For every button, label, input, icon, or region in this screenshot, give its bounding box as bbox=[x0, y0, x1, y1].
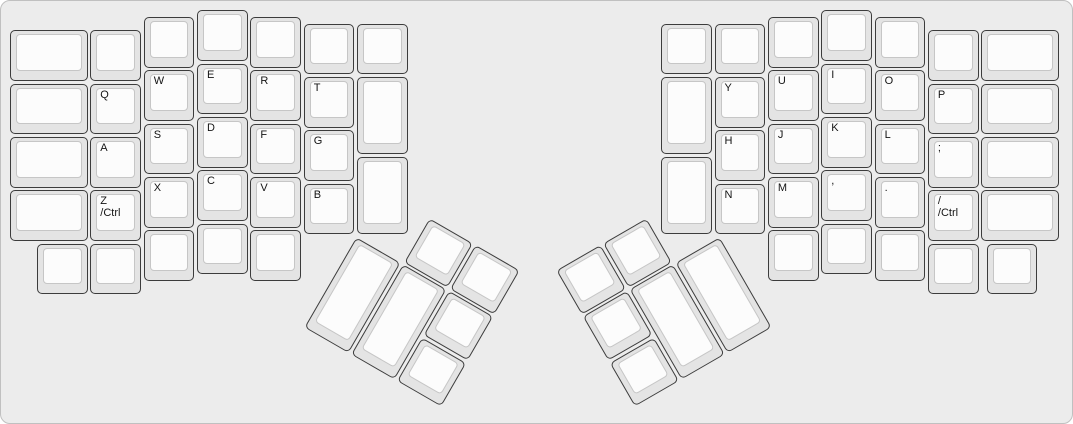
keycap-top: F bbox=[256, 128, 295, 165]
key-f[interactable]: F bbox=[250, 124, 301, 175]
key-slash-ctrl[interactable]: / /Ctrl bbox=[928, 190, 979, 241]
keycap-top: C bbox=[203, 174, 242, 211]
blank-key[interactable] bbox=[987, 244, 1038, 295]
keycap-top: M bbox=[774, 181, 813, 218]
blank-key[interactable] bbox=[197, 10, 248, 61]
blank-key[interactable] bbox=[144, 17, 195, 68]
blank-key[interactable] bbox=[928, 244, 979, 295]
key-j[interactable]: J bbox=[768, 124, 819, 175]
key-label: / /Ctrl bbox=[938, 196, 958, 219]
keycap-top: P bbox=[934, 88, 973, 125]
blank-key[interactable] bbox=[981, 137, 1058, 188]
keycap-top: I bbox=[827, 68, 866, 105]
keycap-top bbox=[16, 194, 81, 231]
key-m[interactable]: M bbox=[768, 177, 819, 228]
key-comma[interactable]: , bbox=[821, 170, 872, 221]
key-label: B bbox=[314, 190, 321, 202]
key-label: I bbox=[831, 70, 834, 82]
key-o[interactable]: O bbox=[875, 70, 926, 121]
key-label: V bbox=[260, 183, 267, 195]
keycap-top: A bbox=[96, 141, 135, 178]
key-t[interactable]: T bbox=[304, 77, 355, 128]
blank-key[interactable] bbox=[821, 224, 872, 275]
blank-key[interactable] bbox=[661, 157, 712, 234]
keycap-top bbox=[827, 228, 866, 265]
key-label: N bbox=[725, 190, 733, 202]
key-label: Y bbox=[725, 83, 732, 95]
key-p[interactable]: P bbox=[928, 84, 979, 135]
blank-key[interactable] bbox=[661, 77, 712, 154]
blank-key[interactable] bbox=[875, 17, 926, 68]
keycap-top bbox=[987, 88, 1052, 125]
keycap-top bbox=[987, 34, 1052, 71]
keycap-top bbox=[987, 194, 1052, 231]
keycap-top bbox=[987, 141, 1052, 178]
blank-key[interactable] bbox=[357, 24, 408, 75]
blank-key[interactable] bbox=[10, 84, 87, 135]
key-a[interactable]: A bbox=[90, 137, 141, 188]
key-c[interactable]: C bbox=[197, 170, 248, 221]
keycap-top bbox=[16, 34, 81, 71]
key-label: U bbox=[778, 76, 786, 88]
blank-key[interactable] bbox=[10, 190, 87, 241]
keycap-top bbox=[16, 88, 81, 125]
blank-key[interactable] bbox=[250, 230, 301, 281]
keycap-top bbox=[16, 141, 81, 178]
key-b[interactable]: B bbox=[304, 184, 355, 235]
key-k[interactable]: K bbox=[821, 117, 872, 168]
keycap-top: H bbox=[721, 134, 760, 171]
keycap-top: ; bbox=[934, 141, 973, 178]
blank-key[interactable] bbox=[661, 24, 712, 75]
keycap-top bbox=[203, 14, 242, 51]
key-y[interactable]: Y bbox=[715, 77, 766, 128]
key-label: . bbox=[885, 183, 888, 195]
keycap-top: J bbox=[774, 128, 813, 165]
key-label: Z /Ctrl bbox=[100, 196, 120, 219]
blank-key[interactable] bbox=[90, 30, 141, 81]
key-label: T bbox=[314, 83, 321, 95]
keycap-top bbox=[774, 21, 813, 58]
key-w[interactable]: W bbox=[144, 70, 195, 121]
keycap-top bbox=[310, 28, 349, 65]
keyboard-layout-stage: QAZ /CtrlWSXEDCRFVTGB YHNUJMIK,OL.P;/ /C… bbox=[0, 0, 1073, 424]
keycap-top: O bbox=[881, 74, 920, 111]
key-label: C bbox=[207, 176, 215, 188]
key-label: L bbox=[885, 130, 891, 142]
keycap-top: B bbox=[310, 188, 349, 225]
keycap-top bbox=[256, 21, 295, 58]
keycap-top: / /Ctrl bbox=[934, 194, 973, 231]
blank-key[interactable] bbox=[357, 157, 408, 234]
keycap-top bbox=[43, 248, 82, 285]
key-n[interactable]: N bbox=[715, 184, 766, 235]
keycap-top: Y bbox=[721, 81, 760, 118]
key-label: S bbox=[154, 130, 161, 142]
keycap-top bbox=[881, 234, 920, 271]
key-label: F bbox=[260, 130, 267, 142]
keycap-top: K bbox=[827, 121, 866, 158]
key-label: P bbox=[938, 90, 945, 102]
blank-key[interactable] bbox=[821, 10, 872, 61]
blank-key[interactable] bbox=[37, 244, 88, 295]
key-h[interactable]: H bbox=[715, 130, 766, 181]
keycap-top bbox=[256, 234, 295, 271]
key-z-ctrl[interactable]: Z /Ctrl bbox=[90, 190, 141, 241]
keycap-top bbox=[96, 34, 135, 71]
blank-key[interactable] bbox=[357, 77, 408, 154]
blank-key[interactable] bbox=[768, 17, 819, 68]
keycap-top bbox=[150, 234, 189, 271]
key-period[interactable]: . bbox=[875, 177, 926, 228]
key-label: W bbox=[154, 76, 164, 88]
keycap-top bbox=[667, 161, 706, 224]
keycap-top bbox=[203, 228, 242, 265]
key-label: E bbox=[207, 70, 214, 82]
key-x[interactable]: X bbox=[144, 177, 195, 228]
key-label: , bbox=[831, 176, 834, 188]
key-i[interactable]: I bbox=[821, 64, 872, 115]
key-d[interactable]: D bbox=[197, 117, 248, 168]
keycap-top: N bbox=[721, 188, 760, 225]
key-label: A bbox=[100, 143, 107, 155]
key-g[interactable]: G bbox=[304, 130, 355, 181]
key-label: G bbox=[314, 136, 323, 148]
keycap-top: Z /Ctrl bbox=[96, 194, 135, 231]
keycap-top bbox=[150, 21, 189, 58]
keycap-top: D bbox=[203, 121, 242, 158]
blank-key[interactable] bbox=[981, 190, 1058, 241]
blank-key[interactable] bbox=[250, 17, 301, 68]
blank-key[interactable] bbox=[10, 30, 87, 81]
key-label: J bbox=[778, 130, 784, 142]
key-label: O bbox=[885, 76, 894, 88]
blank-key[interactable] bbox=[715, 24, 766, 75]
key-label: M bbox=[778, 183, 787, 195]
keycap-top bbox=[667, 81, 706, 144]
blank-key[interactable] bbox=[10, 137, 87, 188]
blank-key[interactable] bbox=[90, 244, 141, 295]
keycap-top bbox=[96, 248, 135, 285]
keycap-top bbox=[934, 248, 973, 285]
keycap-top bbox=[993, 248, 1032, 285]
key-semicolon[interactable]: ; bbox=[928, 137, 979, 188]
key-label: D bbox=[207, 123, 215, 135]
keycap-top: T bbox=[310, 81, 349, 118]
key-u[interactable]: U bbox=[768, 70, 819, 121]
key-l[interactable]: L bbox=[875, 124, 926, 175]
blank-key[interactable] bbox=[304, 24, 355, 75]
keycap-top: , bbox=[827, 174, 866, 211]
keycap-top: E bbox=[203, 68, 242, 105]
key-label: K bbox=[831, 123, 838, 135]
blank-key[interactable] bbox=[875, 230, 926, 281]
key-r[interactable]: R bbox=[250, 70, 301, 121]
keycap-top: . bbox=[881, 181, 920, 218]
keycap-top bbox=[414, 224, 466, 275]
keycap-top bbox=[881, 21, 920, 58]
keycap-top bbox=[774, 234, 813, 271]
keycap-top bbox=[721, 28, 760, 65]
key-q[interactable]: Q bbox=[90, 84, 141, 135]
keycap-top: W bbox=[150, 74, 189, 111]
key-v[interactable]: V bbox=[250, 177, 301, 228]
keycap-top: R bbox=[256, 74, 295, 111]
key-label: Q bbox=[100, 90, 109, 102]
keycap-top: X bbox=[150, 181, 189, 218]
blank-key[interactable] bbox=[928, 30, 979, 81]
key-label: H bbox=[725, 136, 733, 148]
key-label: R bbox=[260, 76, 268, 88]
keycap-top: S bbox=[150, 128, 189, 165]
key-s[interactable]: S bbox=[144, 124, 195, 175]
keycap-top: V bbox=[256, 181, 295, 218]
blank-key[interactable] bbox=[144, 230, 195, 281]
keycap-top bbox=[363, 28, 402, 65]
keycap-top: G bbox=[310, 134, 349, 171]
keycap-top: Q bbox=[96, 88, 135, 125]
keycap-top bbox=[667, 28, 706, 65]
keycap-top bbox=[363, 161, 402, 224]
keycap-top bbox=[563, 251, 615, 302]
keycap-top bbox=[609, 224, 661, 275]
blank-key[interactable] bbox=[768, 230, 819, 281]
keycap-top bbox=[934, 34, 973, 71]
keycap-top: U bbox=[774, 74, 813, 111]
key-label: ; bbox=[938, 143, 941, 155]
keycap-top bbox=[460, 251, 512, 302]
keycap-top bbox=[363, 81, 402, 144]
key-e[interactable]: E bbox=[197, 64, 248, 115]
keycap-top: L bbox=[881, 128, 920, 165]
key-label: X bbox=[154, 183, 161, 195]
blank-key[interactable] bbox=[981, 30, 1058, 81]
keycap-top bbox=[827, 14, 866, 51]
blank-key[interactable] bbox=[197, 224, 248, 275]
keyboard-case: QAZ /CtrlWSXEDCRFVTGB YHNUJMIK,OL.P;/ /C… bbox=[0, 0, 1073, 424]
blank-key[interactable] bbox=[981, 84, 1058, 135]
